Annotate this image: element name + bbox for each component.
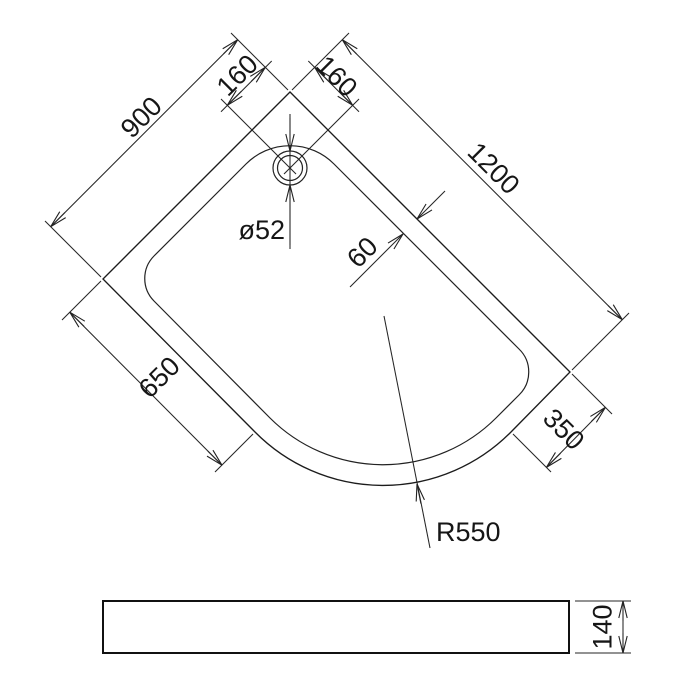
dim-label-r550: R550: [436, 517, 501, 547]
drawing-page: 900 1200 160 160 ø52: [0, 0, 684, 683]
dim-label-drain: ø52: [238, 215, 285, 245]
dim-label-140: 140: [588, 604, 618, 649]
cad-drawing: 900 1200 160 160 ø52: [0, 0, 684, 683]
